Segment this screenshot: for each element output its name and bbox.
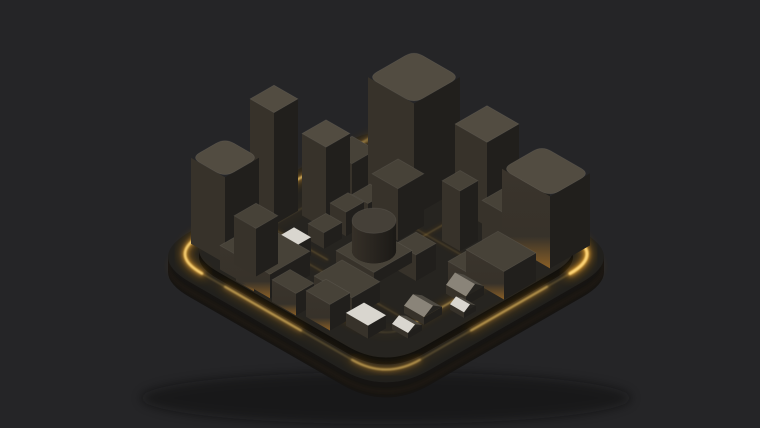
slender-tower-right-face bbox=[274, 99, 298, 225]
tank-cylinder-top bbox=[352, 208, 396, 233]
right-thin-block-left-face bbox=[442, 181, 460, 251]
tank-cylinder-side-bottom bbox=[352, 238, 396, 263]
right-thin-block-right-face bbox=[460, 181, 478, 251]
city-render-canvas bbox=[0, 0, 760, 428]
city-scene-figure bbox=[0, 0, 760, 428]
render-stage bbox=[0, 0, 760, 428]
